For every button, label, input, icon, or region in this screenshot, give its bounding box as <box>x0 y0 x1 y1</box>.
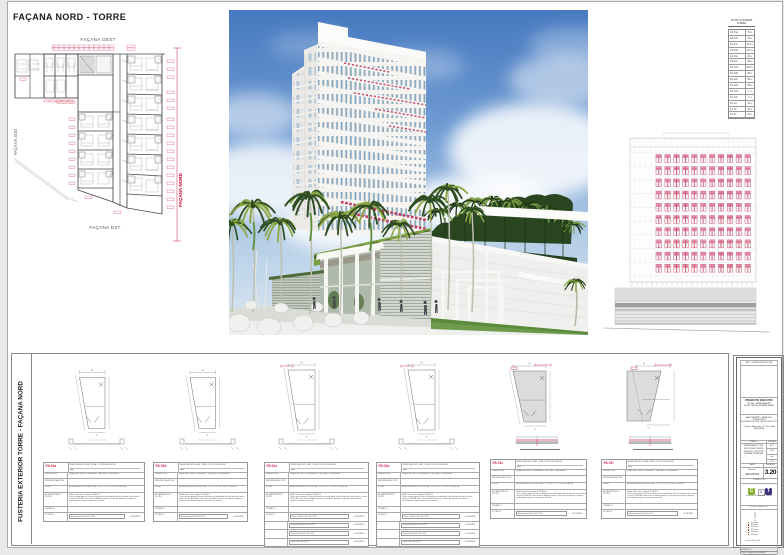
svg-text:A: A <box>202 368 204 372</box>
svg-text:FAÇANA SUD: FAÇANA SUD <box>13 129 18 156</box>
svg-text:A: A <box>300 361 302 365</box>
svg-text:a: a <box>649 427 651 430</box>
svg-text:a: a <box>207 434 209 437</box>
svg-text:A: A <box>643 362 645 366</box>
svg-text:a: a <box>426 436 428 439</box>
svg-text:a: a <box>96 434 98 437</box>
svg-text:a: a <box>306 436 308 439</box>
svg-text:FAÇANA NORD: FAÇANA NORD <box>178 172 183 206</box>
svg-text:a: a <box>534 428 536 431</box>
svg-text:A: A <box>91 368 93 372</box>
svg-text:A: A <box>528 362 530 366</box>
svg-text:A: A <box>420 361 422 365</box>
svg-text:FAÇANA EST: FAÇANA EST <box>89 225 120 230</box>
svg-text:FAÇANA OEST: FAÇANA OEST <box>80 37 115 42</box>
